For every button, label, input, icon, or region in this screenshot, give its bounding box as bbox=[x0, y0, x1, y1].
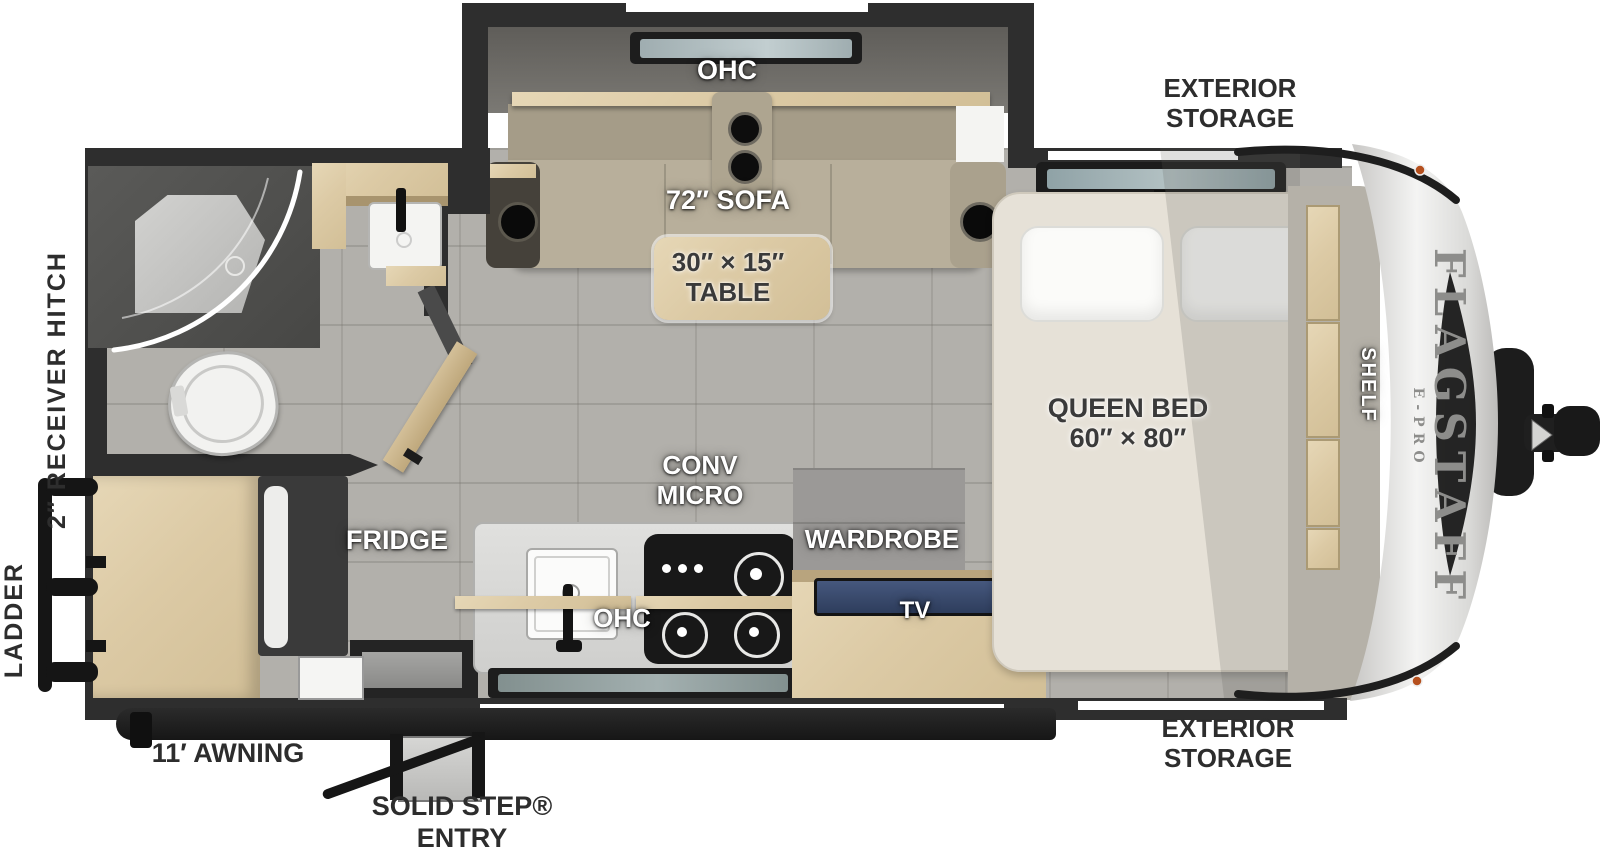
stove-knob bbox=[662, 564, 671, 573]
shower-drain bbox=[225, 256, 245, 276]
burner-center bbox=[677, 627, 687, 637]
label-ohc-slide: OHC bbox=[697, 55, 757, 85]
label-line: EXTERIOR bbox=[1162, 713, 1295, 743]
label-sofa: 72″ SOFA bbox=[666, 185, 790, 215]
label-exterior-storage-top: EXTERIOR STORAGE bbox=[1164, 73, 1297, 133]
ohc-shelf-kitchen bbox=[636, 596, 808, 609]
wardrobe-top bbox=[793, 468, 965, 574]
label-conv-micro: CONV MICRO bbox=[657, 450, 744, 510]
ladder-mount bbox=[86, 556, 106, 568]
label-line: STORAGE bbox=[1162, 743, 1295, 773]
shelf-slat bbox=[1306, 528, 1340, 570]
label-text: TV bbox=[900, 597, 931, 624]
label-text: WARDROBE bbox=[805, 524, 960, 554]
awning-bracket bbox=[130, 712, 152, 748]
entry-step-plate bbox=[298, 656, 364, 700]
shelf-slat bbox=[1306, 322, 1340, 438]
label-text: LADDER bbox=[0, 562, 28, 678]
bath-faucet bbox=[396, 188, 406, 232]
shower-pan bbox=[135, 195, 265, 313]
cupholder bbox=[728, 150, 762, 184]
brand-name: FLAGSTAFF bbox=[1426, 228, 1472, 628]
label-tv: TV bbox=[900, 596, 931, 626]
label-awning: 11′ AWNING bbox=[152, 738, 305, 768]
sofa-seam bbox=[830, 164, 832, 264]
label-text: OHC bbox=[593, 603, 651, 633]
bath-vanity-base bbox=[386, 266, 446, 286]
marker-light bbox=[1415, 165, 1425, 175]
slideout-left-wall bbox=[462, 3, 488, 168]
bathroom-lower-wall bbox=[88, 454, 350, 476]
label-text: 2″ RECEIVER HITCH bbox=[43, 251, 71, 529]
burner-center bbox=[749, 627, 759, 637]
ladder-rung bbox=[46, 662, 98, 682]
bath-sink-drain bbox=[396, 232, 412, 248]
label-line: 60″ × 80″ bbox=[1048, 423, 1209, 453]
label-line: ENTRY bbox=[372, 822, 552, 854]
label-shelf: SHELF bbox=[1353, 305, 1379, 465]
cupholder bbox=[728, 112, 762, 146]
label-line: TABLE bbox=[672, 277, 784, 307]
label-ohc-kitchen: OHC bbox=[593, 603, 651, 633]
label-exterior-storage-bottom: EXTERIOR STORAGE bbox=[1162, 713, 1295, 773]
label-receiver-hitch: 2″ RECEIVER HITCH bbox=[43, 222, 73, 558]
sofa-arm-left-top bbox=[490, 164, 536, 178]
label-line: QUEEN BED bbox=[1048, 393, 1209, 423]
label-text: 11′ AWNING bbox=[152, 738, 305, 768]
label-solid-step-entry: SOLID STEP® ENTRY bbox=[372, 790, 552, 854]
label-line: EXTERIOR bbox=[1164, 73, 1297, 103]
kitchen-faucet-base bbox=[556, 640, 582, 652]
label-line: CONV bbox=[657, 450, 744, 480]
slideout-end-window bbox=[626, 3, 868, 12]
hitch bbox=[1484, 348, 1600, 496]
sofa-arm-right-panel bbox=[956, 106, 1004, 162]
label-line: 30″ × 15″ bbox=[672, 247, 784, 277]
wall-corner-block bbox=[446, 148, 490, 214]
bathroom-lower-wall-tip bbox=[350, 454, 378, 476]
floorplan: OHC EXTERIOR STORAGE 72″ SOFA 30″ × 15″ … bbox=[0, 0, 1600, 860]
label-fridge: FRIDGE bbox=[346, 525, 448, 555]
ladder-mount bbox=[86, 640, 106, 652]
label-line: STORAGE bbox=[1164, 103, 1297, 133]
label-text: 72″ SOFA bbox=[666, 185, 790, 215]
label-queen-bed: QUEEN BED 60″ × 80″ bbox=[1048, 393, 1209, 453]
entry-mat-inner bbox=[362, 652, 462, 688]
bath-vanity-side bbox=[312, 163, 346, 249]
marker-light bbox=[1412, 676, 1422, 686]
kitchen-window-glass bbox=[498, 674, 788, 692]
fridge-door bbox=[264, 486, 288, 648]
label-text: FRIDGE bbox=[346, 525, 448, 555]
label-ladder: LADDER bbox=[0, 540, 28, 700]
cupholder bbox=[498, 202, 538, 242]
label-table: 30″ × 15″ TABLE bbox=[672, 247, 784, 307]
slideout-right-wall bbox=[1008, 3, 1034, 168]
bottom-wall-trim bbox=[1078, 701, 1324, 710]
burner-center bbox=[750, 568, 762, 580]
shelf-slat bbox=[1306, 439, 1340, 527]
shelf-slat bbox=[1306, 205, 1340, 321]
kitchen-faucet bbox=[563, 584, 573, 648]
label-wardrobe: WARDROBE bbox=[805, 524, 960, 554]
label-text: OHC bbox=[697, 55, 757, 85]
label-text: SHELF bbox=[1357, 347, 1379, 423]
brand-sub: E-PRO bbox=[1410, 228, 1426, 628]
stove-knob bbox=[694, 564, 703, 573]
stove-knob bbox=[678, 564, 687, 573]
brand-logo: FLAGSTAFF E-PRO bbox=[1384, 228, 1472, 628]
awning-bar bbox=[116, 708, 1056, 740]
ladder-rung bbox=[46, 578, 98, 596]
storage-cabinet bbox=[93, 476, 260, 698]
label-line: MICRO bbox=[657, 480, 744, 510]
pillow bbox=[1020, 226, 1164, 322]
label-line: SOLID STEP® bbox=[372, 790, 552, 822]
